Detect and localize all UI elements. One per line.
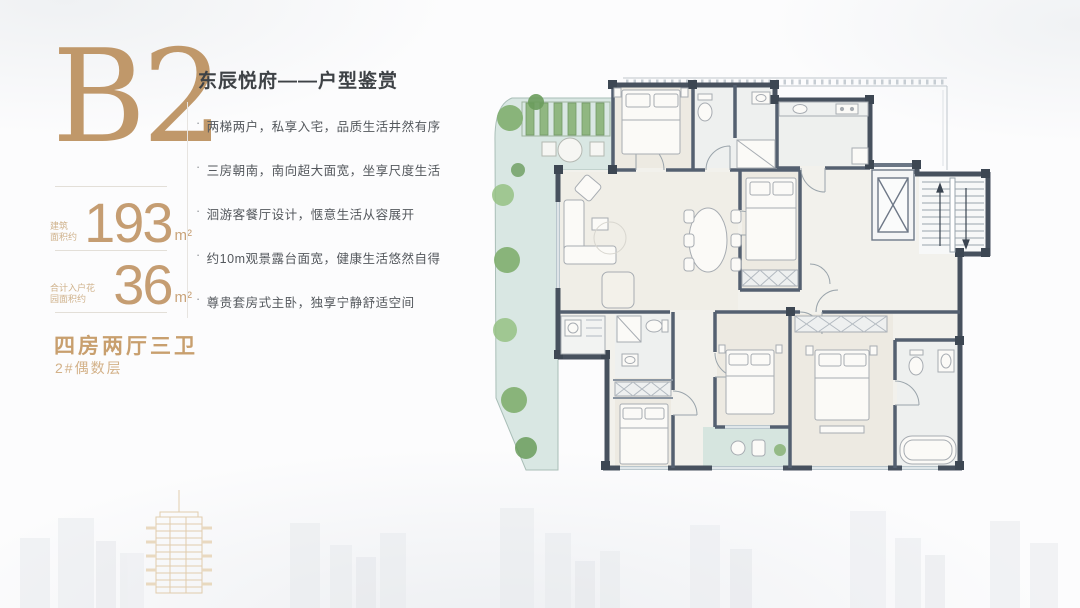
bed-b (620, 404, 668, 464)
bullet-marker: · (196, 204, 201, 223)
bed-top-right (742, 178, 798, 286)
feature-bullet: ·约10m观景露台面宽，健康生活悠然自得 (196, 248, 441, 267)
feature-bullet: ·尊贵套房式主卧，独享宁静舒适空间 (196, 292, 441, 311)
feature-list: ·两梯两户，私享入宅，品质生活井然有序 ·三房朝南，南向超大面宽，坐享尺度生活 … (196, 116, 441, 336)
area-value: 193 (80, 198, 172, 248)
divider-line (55, 250, 167, 251)
vertical-divider (187, 102, 188, 318)
bullet-marker: · (196, 292, 201, 311)
area-label: 合计入户花 园面积约 (50, 283, 95, 310)
page-title: 东辰悦府——户型鉴赏 (198, 66, 398, 93)
feature-bullet: ·洄游客餐厅设计，惬意生活从容展开 (196, 204, 441, 223)
elevator-icon (872, 170, 914, 240)
bullet-marker: · (196, 116, 201, 135)
laundry (561, 316, 605, 354)
floor-note: 2#偶数层 (55, 358, 123, 378)
divider-line (55, 312, 167, 313)
area-unit: m² (172, 227, 193, 248)
bed-a (614, 88, 688, 154)
area-row-garden: 合计入户花 园面积约 36 m² (50, 260, 192, 310)
floor-plan (470, 50, 1080, 500)
area-unit: m² (172, 289, 193, 310)
divider-line (55, 186, 167, 187)
unit-code: B2 (52, 42, 212, 162)
bullet-marker: · (196, 248, 201, 267)
bed-c (719, 345, 782, 414)
area-value: 36 (95, 260, 171, 310)
feature-bullet: ·两梯两户，私享入宅，品质生活井然有序 (196, 116, 441, 135)
dining-set (684, 208, 741, 272)
area-label: 建筑 面积约 (50, 221, 80, 248)
layout-type: 四房两厅三卫 (54, 330, 198, 360)
bullet-marker: · (196, 160, 201, 179)
feature-bullet: ·三房朝南，南向超大面宽，坐享尺度生活 (196, 160, 441, 179)
skyline-watermark (0, 483, 1080, 608)
area-row-building: 建筑 面积约 193 m² (50, 198, 192, 248)
